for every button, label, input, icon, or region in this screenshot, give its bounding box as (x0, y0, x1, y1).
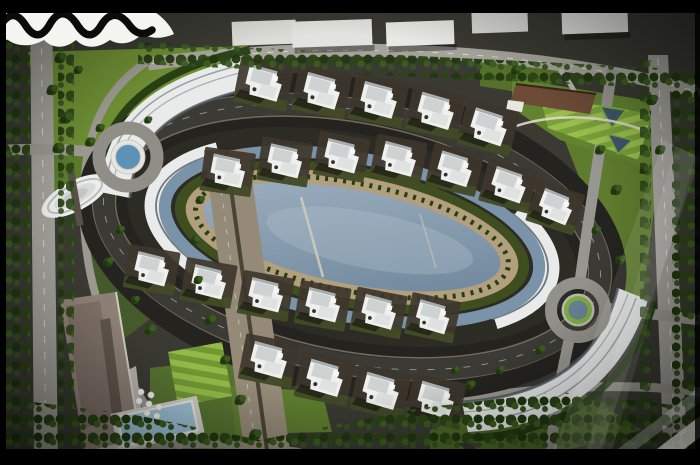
aerial-render (0, 0, 700, 465)
aerial-render-stage (0, 0, 700, 465)
letterbox-bottom (0, 449, 700, 465)
border-left (0, 0, 6, 465)
letterbox-top (0, 0, 700, 13)
border-right (695, 0, 700, 465)
